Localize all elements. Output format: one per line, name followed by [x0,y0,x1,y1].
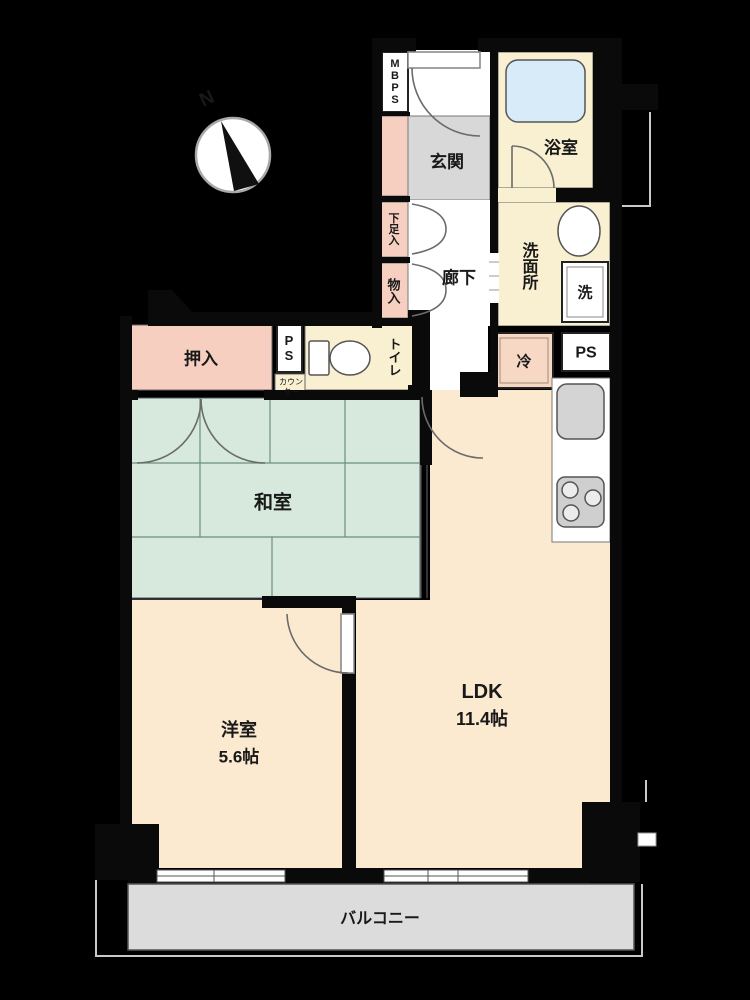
label-balcony: バルコニー [340,910,420,928]
ldk-floor-lower [356,600,552,868]
toilet-tank-icon [309,341,329,375]
label-genkan: 玄関 [430,152,464,172]
entrance-door-leaf [408,52,480,68]
yoshitsu-window [157,870,285,882]
bathtub [506,60,585,122]
label-ldk-size: 11.4帖 [456,708,508,729]
label-oshiire: 押入 [184,349,218,369]
label-laundry: 洗 [577,284,592,302]
wall-notch [638,833,656,846]
label-fridge: 冷 [516,353,531,371]
label-counter-2: ター [283,388,299,397]
label-ldk: LDK [461,681,503,703]
hallway-floor [408,200,490,325]
yoshitsu-door-leaf [341,614,354,673]
washroom-door-opening [489,253,499,303]
kitchen-sink-icon [557,384,604,439]
label-yoshitsu-size: 5.6帖 [219,747,260,767]
label-hallway: 廊下 [442,268,476,288]
label-washroom: 洗面所 [520,241,539,291]
ldk-floor-upper [430,390,552,602]
washbasin-icon [558,206,600,256]
label-ps-upper: PS [282,333,297,363]
floorplan-canvas: N MBPS 玄関 浴室 洗面所 洗 廊下 下足入 物入 トイレ PS カウン … [0,0,750,1000]
toilet-bowl-icon [330,341,370,375]
label-yoshitsu: 洋室 [221,719,257,740]
label-toilet: トイレ [387,338,402,377]
label-mbps: MBPS [389,58,401,106]
floorplan-svg: N MBPS 玄関 浴室 洗面所 洗 廊下 下足入 物入 トイレ PS カウン … [0,0,750,1000]
label-bathroom: 浴室 [544,138,578,158]
label-shoe-box: 下足入 [387,212,400,246]
bathroom-door-opening [498,188,556,202]
label-storage: 物入 [386,277,401,304]
label-ps-kitchen: PS [575,345,597,362]
label-washitsu: 和室 [254,491,292,514]
ldk-window [384,870,528,882]
label-counter-1: カウン [279,378,303,387]
